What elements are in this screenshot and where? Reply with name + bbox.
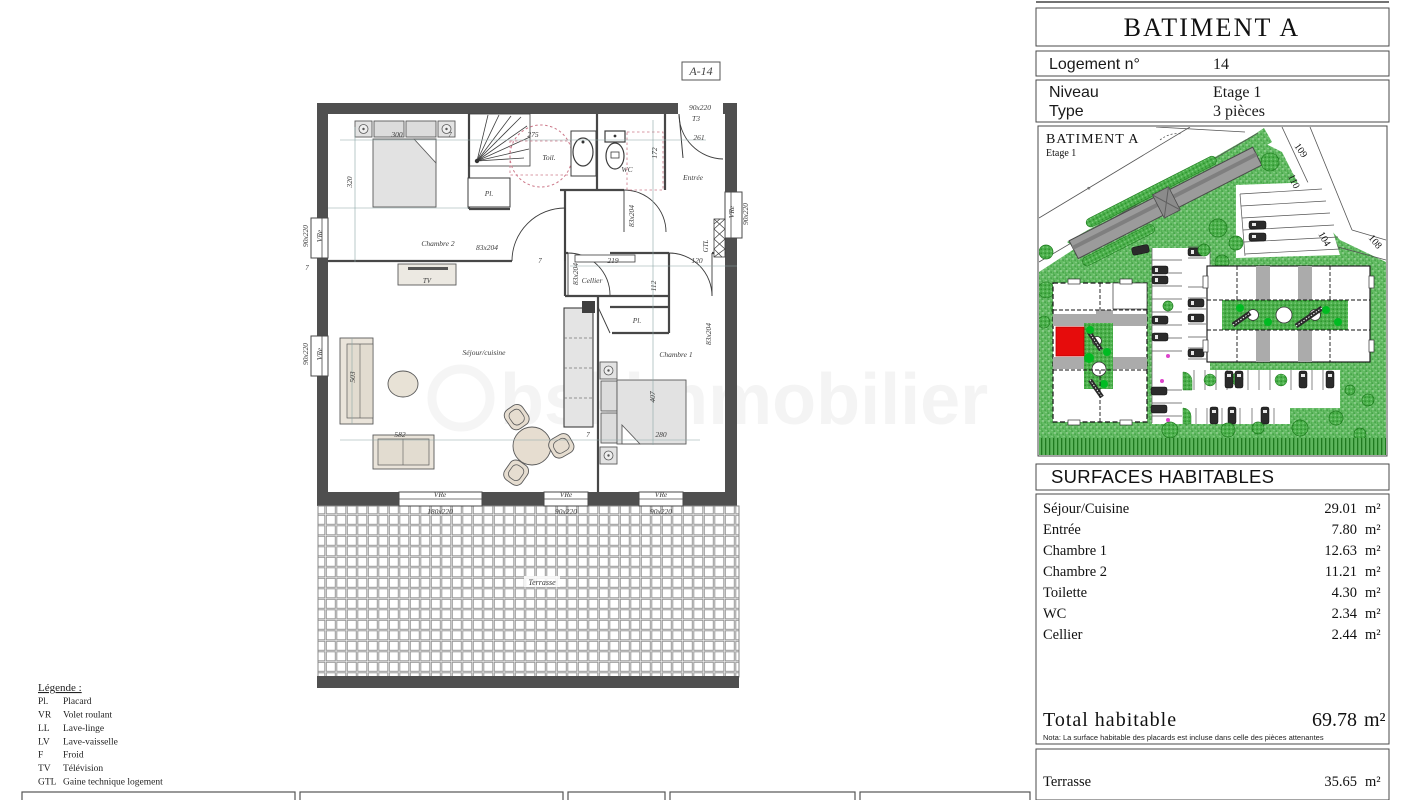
svg-text:Terrasse: Terrasse [528,578,556,587]
svg-text:m²: m² [1365,585,1381,601]
svg-text:112: 112 [649,280,658,291]
svg-text:m²: m² [1365,522,1381,538]
svg-text:m²: m² [1365,564,1381,580]
svg-text:172: 172 [650,147,659,159]
svg-text:BATIMENT A: BATIMENT A [1124,13,1301,42]
svg-text:F: F [38,751,43,761]
svg-text:m²: m² [1365,543,1381,559]
svg-text:2.34: 2.34 [1332,606,1358,622]
svg-text:WC: WC [1043,606,1066,622]
svg-text:Toilette: Toilette [1043,585,1087,601]
svg-text:180x220: 180x220 [427,507,453,516]
svg-text:Toil.: Toil. [542,153,555,162]
svg-text:VRe: VRe [727,205,736,218]
svg-text:7: 7 [448,131,452,139]
svg-text:TV: TV [423,277,432,285]
svg-text:Cellier: Cellier [582,276,603,285]
svg-text:T3: T3 [692,114,700,123]
svg-text:BATIMENT A: BATIMENT A [1046,132,1139,147]
svg-text:m²: m² [1365,606,1381,622]
svg-text:90x220: 90x220 [741,203,750,225]
svg-text:Chambre 2: Chambre 2 [421,239,455,248]
svg-text:Télévision: Télévision [63,764,103,774]
svg-text:219: 219 [607,256,619,265]
svg-text:Cellier: Cellier [1043,627,1083,643]
svg-text:83x204: 83x204 [627,205,636,227]
svg-text:Pl.: Pl. [484,189,494,198]
svg-text:Lave-linge: Lave-linge [63,724,104,734]
svg-text:Froid: Froid [63,751,84,761]
svg-text:A-14: A-14 [688,64,712,78]
svg-text:29.01: 29.01 [1324,501,1357,517]
svg-text:Pl.: Pl. [632,316,642,325]
svg-text:Légende :: Légende : [38,682,82,694]
svg-text:Séjour/Cuisine: Séjour/Cuisine [1043,501,1129,517]
svg-text:LV: LV [38,738,50,748]
svg-text:83x204: 83x204 [476,243,498,252]
svg-text:90x220: 90x220 [301,343,310,365]
svg-text:7: 7 [538,257,542,265]
svg-text:503: 503 [348,371,357,383]
svg-text:90x220: 90x220 [301,225,310,247]
svg-text:Total habitable: Total habitable [1043,709,1177,731]
svg-text:m²: m² [1365,627,1381,643]
svg-text:Etage 1: Etage 1 [1046,148,1076,159]
svg-text:VRe: VRe [655,490,668,499]
svg-text:69.78: 69.78 [1312,709,1357,731]
svg-text:Etage 1: Etage 1 [1213,84,1261,101]
svg-text:4.30: 4.30 [1332,585,1357,601]
svg-text:7: 7 [586,431,590,439]
svg-text:VRe: VRe [560,490,573,499]
svg-text:12.63: 12.63 [1324,543,1357,559]
svg-text:Nota: La surface habitable des: Nota: La surface habitable des placards … [1043,733,1324,742]
svg-text:WC: WC [621,165,633,174]
svg-text:Pl.: Pl. [38,697,48,707]
svg-text:Chambre 1: Chambre 1 [659,350,692,359]
svg-text:90x220: 90x220 [650,507,672,516]
svg-text:7.80: 7.80 [1332,522,1357,538]
svg-text:582: 582 [394,430,406,439]
svg-text:Niveau: Niveau [1049,84,1099,101]
svg-text:14: 14 [1213,56,1229,73]
svg-text:Terrasse: Terrasse [1043,774,1091,790]
svg-text:320: 320 [345,176,354,189]
svg-text:280: 280 [655,430,667,439]
svg-text:300: 300 [390,130,403,139]
svg-text:Lave-vaisselle: Lave-vaisselle [63,738,118,748]
svg-text:261: 261 [693,133,704,142]
svg-text:TV: TV [38,764,51,774]
svg-text:Placard: Placard [63,697,92,707]
svg-text:Séjour/cuisine: Séjour/cuisine [463,348,507,357]
svg-text:90x220: 90x220 [555,507,577,516]
svg-text:90x220: 90x220 [689,103,711,112]
svg-text:Chambre 1: Chambre 1 [1043,543,1107,559]
svg-text:GTL: GTL [38,778,57,788]
svg-text:VR: VR [38,711,52,721]
svg-text:2.44: 2.44 [1332,627,1358,643]
svg-text:Logement n°: Logement n° [1049,56,1140,73]
svg-text:83x204: 83x204 [571,263,580,285]
svg-text:275: 275 [527,130,539,139]
svg-text:Entrée: Entrée [1043,522,1081,538]
svg-text:VRe: VRe [315,229,324,242]
svg-text:Type: Type [1049,103,1084,120]
svg-text:LL: LL [38,724,50,734]
svg-text:m²: m² [1365,774,1381,790]
svg-text:407: 407 [648,391,657,403]
svg-text:m²: m² [1365,501,1381,517]
svg-text:7: 7 [305,264,309,272]
svg-text:3 pièces: 3 pièces [1213,103,1265,120]
svg-text:Chambre 2: Chambre 2 [1043,564,1107,580]
svg-text:11.21: 11.21 [1325,564,1357,580]
svg-text:35.65: 35.65 [1324,774,1357,790]
svg-text:m²: m² [1364,709,1386,731]
svg-text:VRe: VRe [434,490,447,499]
svg-text:VRe: VRe [315,347,324,360]
svg-text:Gaine technique logement: Gaine technique logement [63,778,163,788]
svg-text:SURFACES HABITABLES: SURFACES HABITABLES [1051,466,1274,487]
svg-text:GTL: GTL [702,239,710,252]
svg-text:83x204: 83x204 [704,323,713,345]
svg-text:120: 120 [691,256,703,265]
svg-text:Entrée: Entrée [682,173,704,182]
svg-text:Volet roulant: Volet roulant [63,711,113,721]
